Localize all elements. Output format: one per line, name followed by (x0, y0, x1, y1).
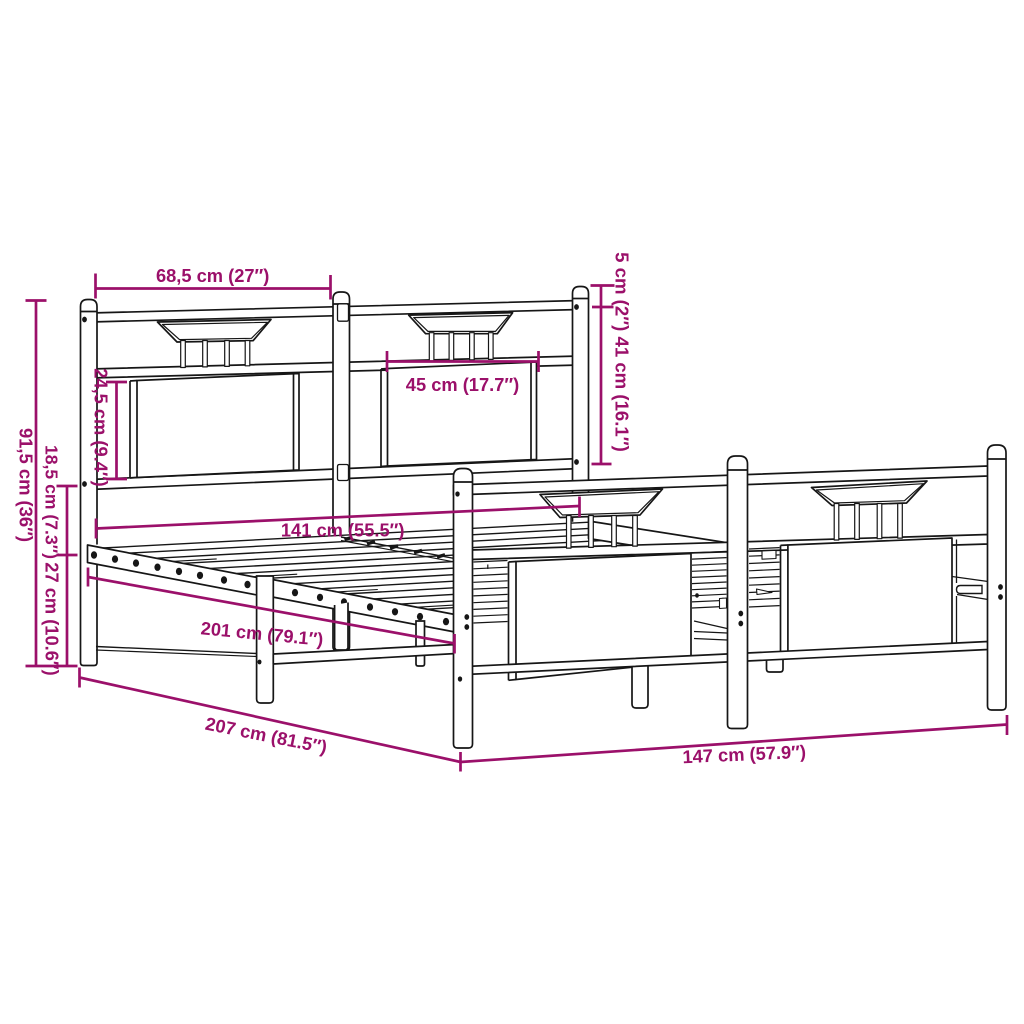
svg-text:45 cm (17.7″): 45 cm (17.7″) (406, 374, 519, 395)
svg-text:18,5 cm (7.3″): 18,5 cm (7.3″) (42, 445, 62, 559)
svg-text:5 cm (2″) 41 cm (16.1″): 5 cm (2″) 41 cm (16.1″) (612, 252, 633, 452)
svg-text:24,5 cm (9.4″): 24,5 cm (9.4″) (91, 368, 112, 487)
svg-text:68,5 cm (27″): 68,5 cm (27″) (156, 265, 269, 286)
svg-text:141 cm (55.5″): 141 cm (55.5″) (281, 520, 405, 541)
svg-text:91,5 cm (36″): 91,5 cm (36″) (16, 428, 37, 542)
svg-text:27 cm (10.6″): 27 cm (10.6″) (42, 562, 63, 675)
